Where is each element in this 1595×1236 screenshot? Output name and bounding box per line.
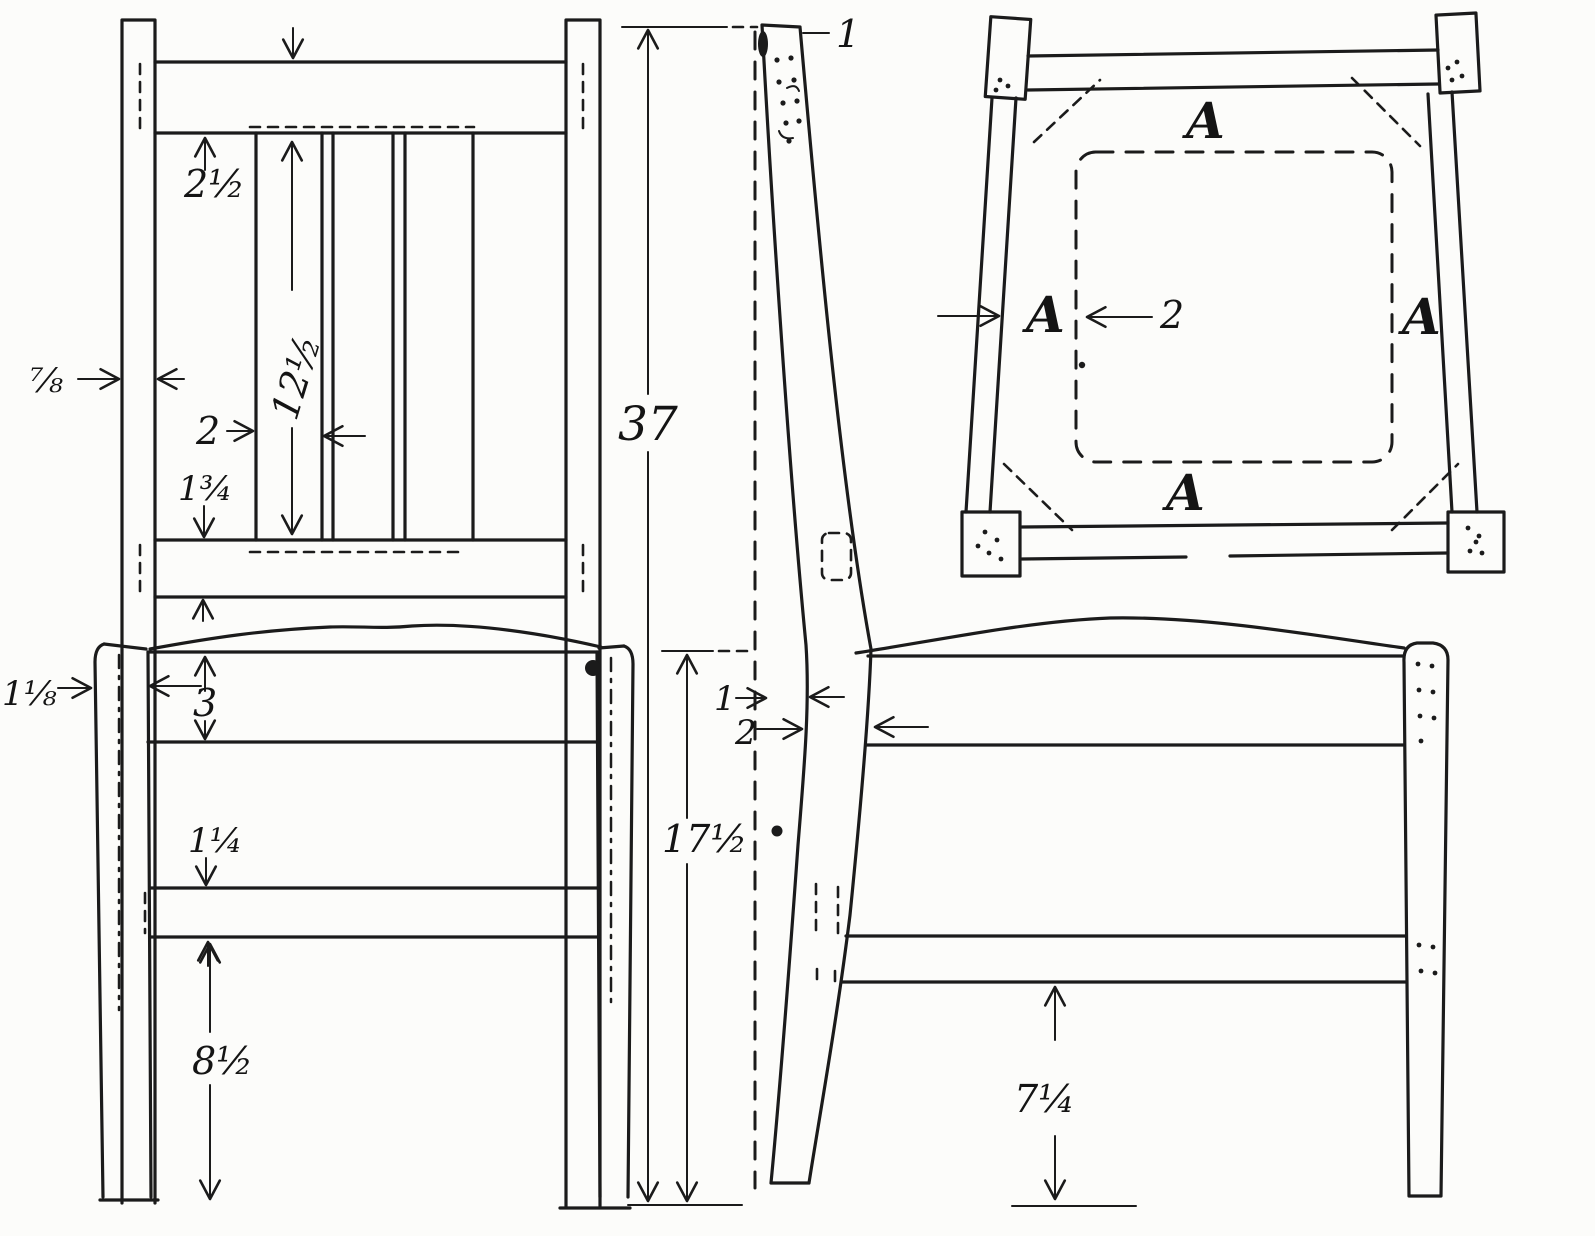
dot (1446, 66, 1451, 71)
ink-blot-post-top (758, 31, 768, 57)
label-front-rail: A (1162, 463, 1205, 522)
dot (1419, 739, 1424, 744)
front-dimensions: 2½ 12½ 2 1¾ ⅞ 3 1⅛ 1¼ 8½ (2, 28, 365, 1199)
crest-rail (155, 62, 566, 133)
seat-plan-view: A A 2 A A (938, 13, 1504, 576)
post-plan-top-right (1436, 13, 1480, 93)
dot (788, 55, 793, 60)
dot-hook (779, 86, 799, 138)
dot (1416, 662, 1421, 667)
dim-seat-inset: 2 (1159, 293, 1184, 337)
dim-seat-height: 17½ (662, 817, 747, 861)
ink-blot-seat-corner (585, 660, 601, 676)
dot (774, 57, 779, 62)
dot (1460, 74, 1465, 79)
side-elevation: 1 37 17½ 1 2 7¼ (618, 12, 1448, 1206)
dot (995, 538, 1000, 543)
seat-rail-side (866, 656, 1403, 745)
dot (1455, 60, 1460, 65)
dot (1433, 971, 1438, 976)
chair-working-drawing: 2½ 12½ 2 1¾ ⅞ 3 1⅛ 1¼ 8½ (0, 0, 1595, 1236)
dot (983, 530, 988, 535)
ink-speck (1079, 362, 1085, 368)
dot (1468, 549, 1473, 554)
dim-overall-height: 37 (618, 397, 678, 452)
back-rail-plan (1028, 50, 1438, 90)
rush-seat-outline-hidden (1076, 152, 1392, 462)
chair-plan-svg: 2½ 12½ 2 1¾ ⅞ 3 1⅛ 1¼ 8½ (0, 0, 1595, 1236)
stretcher-mortise-hidden (816, 884, 838, 986)
post-plan-bottom-left (962, 512, 1020, 576)
front-leg-side (1404, 643, 1448, 1196)
back-post-right (560, 20, 630, 1208)
dim-lower-rail: 1¾ (178, 469, 233, 509)
dot (1419, 969, 1424, 974)
dim-crest-rail: 2½ (183, 162, 245, 206)
dot (1418, 714, 1423, 719)
dim-post-top-depth: 1 (836, 12, 860, 56)
lower-back-rail (155, 540, 566, 597)
dot (994, 88, 999, 93)
dim-stretcher-depth: 1¼ (188, 821, 243, 861)
dot (776, 79, 781, 84)
rail-mortise-hidden (822, 533, 851, 580)
dim-seat-rail: 3 (193, 681, 217, 725)
dot (794, 98, 799, 103)
dim-leg-thickness: 1⅛ (2, 674, 57, 714)
front-elevation: 2½ 12½ 2 1¾ ⅞ 3 1⅛ 1¼ 8½ (2, 20, 633, 1208)
rush-seat-front-edge (150, 625, 601, 649)
dim-slat-width: 2 (195, 409, 220, 453)
dot (783, 120, 788, 125)
floor-line (628, 1205, 1136, 1206)
side-stretcher (842, 936, 1406, 982)
front-stretcher (151, 888, 597, 937)
dot (791, 77, 796, 82)
back-post-side-profile (762, 25, 871, 1183)
dot (1417, 943, 1422, 948)
dim-slat-length: 12½ (263, 330, 330, 424)
leg-tenon-dots (1416, 662, 1438, 976)
dot (1006, 84, 1011, 89)
dot (976, 544, 981, 549)
left-rail-plan (966, 98, 1016, 512)
label-left-rail: A (1022, 285, 1065, 344)
dot (987, 551, 992, 556)
front-rail-plan (1022, 523, 1448, 559)
dot (1466, 526, 1471, 531)
dim-stretcher-floor: 8½ (192, 1039, 253, 1083)
ink-blot-plumb-line (772, 826, 783, 837)
dot (1477, 534, 1482, 539)
dim-post-setback: 1 (714, 679, 736, 719)
dot (1431, 690, 1436, 695)
dot (780, 100, 785, 105)
label-right-rail: A (1398, 287, 1441, 346)
dot (998, 78, 1003, 83)
dim-post-thickness: ⅞ (30, 361, 63, 401)
dot (1450, 78, 1455, 83)
dot (999, 557, 1004, 562)
dot (796, 118, 801, 123)
dot (1480, 551, 1485, 556)
dot (1432, 716, 1437, 721)
side-dimensions: 1 37 17½ 1 2 7¼ (618, 12, 1136, 1206)
dim-post-seat-depth: 2 (734, 713, 757, 753)
dot (1430, 664, 1435, 669)
dot (1417, 688, 1422, 693)
post-tenon-dots (774, 55, 801, 143)
front-leg-right (597, 646, 633, 1197)
rush-seat-side-edge (856, 618, 1404, 653)
dot (1474, 540, 1479, 545)
dim-side-stretcher-floor: 7¼ (1014, 1077, 1075, 1121)
label-back-rail: A (1182, 91, 1225, 150)
dot (1431, 945, 1436, 950)
